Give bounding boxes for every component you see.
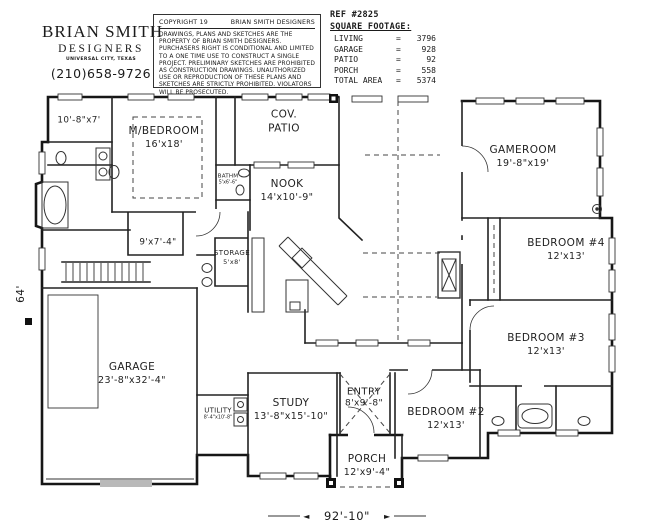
room-label-utility: UTILITY 8'-4"x10'-8" [204, 406, 233, 421]
dimension-arrow-left-icon: ◄ [303, 512, 310, 521]
copyright-year: COPYRIGHT 19 [159, 19, 208, 26]
copyright-line: COPYRIGHT 19 BRIAN SMITH DESIGNERS [159, 19, 315, 29]
sqft-row-garage: GARAGE = 928 [334, 45, 470, 56]
ref-number: REF #2825 [330, 10, 470, 20]
room-label-gameroom: GAMEROOM 19'-8"x19' [489, 144, 556, 170]
posts [25, 94, 404, 488]
room-label-bedroom-2: BEDROOM #2 12'x13' [407, 406, 485, 432]
square-footage-table: REF #2825 SQUARE FOOTAGE: LIVING = 3796 … [330, 10, 470, 87]
room-label-master-bath: BATHM 5'x6'-6" [218, 173, 239, 187]
sqft-row-porch: PORCH = 558 [334, 66, 470, 77]
copyright-notice: COPYRIGHT 19 BRIAN SMITH DESIGNERS DRAWI… [153, 14, 321, 88]
room-label-master-bedroom: M/BEDROOM 16'x18' [128, 125, 199, 151]
room-label-porch: PORCH 12'x9'-4" [344, 453, 390, 479]
sqft-row-total: TOTAL AREA = 5374 [334, 76, 470, 87]
room-label-cov-patio: COV. PATIO [268, 108, 300, 135]
sqft-row-patio: PATIO = 92 [334, 55, 470, 66]
firm-subtitle: DESIGNERS [42, 43, 160, 55]
firm-phone: (210)658-9726 [42, 66, 160, 81]
dimension-arrow-right-icon: ► [384, 512, 391, 521]
fixtures [42, 146, 602, 479]
room-label-garage: GARAGE 23'-8"x32'-4" [98, 361, 166, 387]
garage-door [100, 480, 152, 487]
overall-width-dimension: ◄ 92'-10" ► [303, 509, 391, 523]
copyright-disclaimer: DRAWINGS, PLANS AND SKETCHES ARE THE PRO… [159, 32, 315, 97]
room-label-bedroom-3: BEDROOM #3 12'x13' [507, 332, 585, 358]
room-label-storage: STORAGE 5'x8' [214, 249, 250, 267]
room-label-study: STUDY 13'-8"x15'-10" [254, 397, 328, 423]
sqft-row-living: LIVING = 3796 [334, 34, 470, 45]
floor-plan-sheet: BRIAN SMITH DESIGNERS UNIVERSAL CITY, TE… [0, 0, 650, 531]
firm-name: BRIAN SMITH [42, 22, 160, 42]
copyright-owner: BRIAN SMITH DESIGNERS [231, 19, 315, 26]
stairs [66, 263, 143, 281]
firm-logo: BRIAN SMITH DESIGNERS UNIVERSAL CITY, TE… [42, 22, 160, 81]
room-label-nook: NOOK 14'x10'-9" [261, 178, 314, 204]
firm-location: UNIVERSAL CITY, TEXAS [42, 57, 160, 62]
room-label-master-closet: 10'-8"x7' [57, 115, 100, 126]
overall-height-dimension: 64' [15, 285, 27, 303]
overall-width-value: 92'-10" [324, 509, 370, 523]
room-label-bedroom-4: BEDROOM #4 12'x13' [527, 237, 605, 263]
room-label-entry: ENTRY 8'x9'-8" [345, 386, 383, 411]
square-footage-title: SQUARE FOOTAGE: [330, 22, 470, 32]
room-label-sitting-room: 9'x7'-4" [139, 237, 176, 248]
